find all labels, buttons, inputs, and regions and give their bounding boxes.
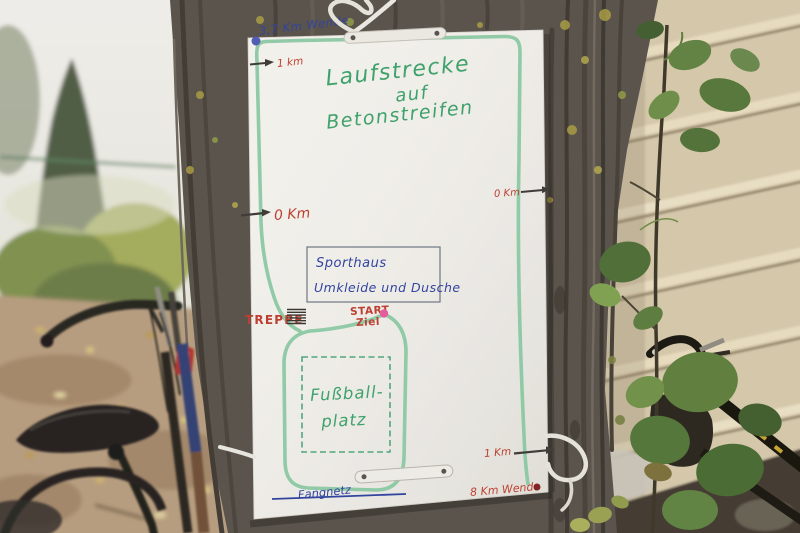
photo-of-course-map-sign: Laufstrecke auf Betonstreifen 3,7 Km Wen… xyxy=(0,0,800,533)
photo-tint xyxy=(0,0,800,533)
